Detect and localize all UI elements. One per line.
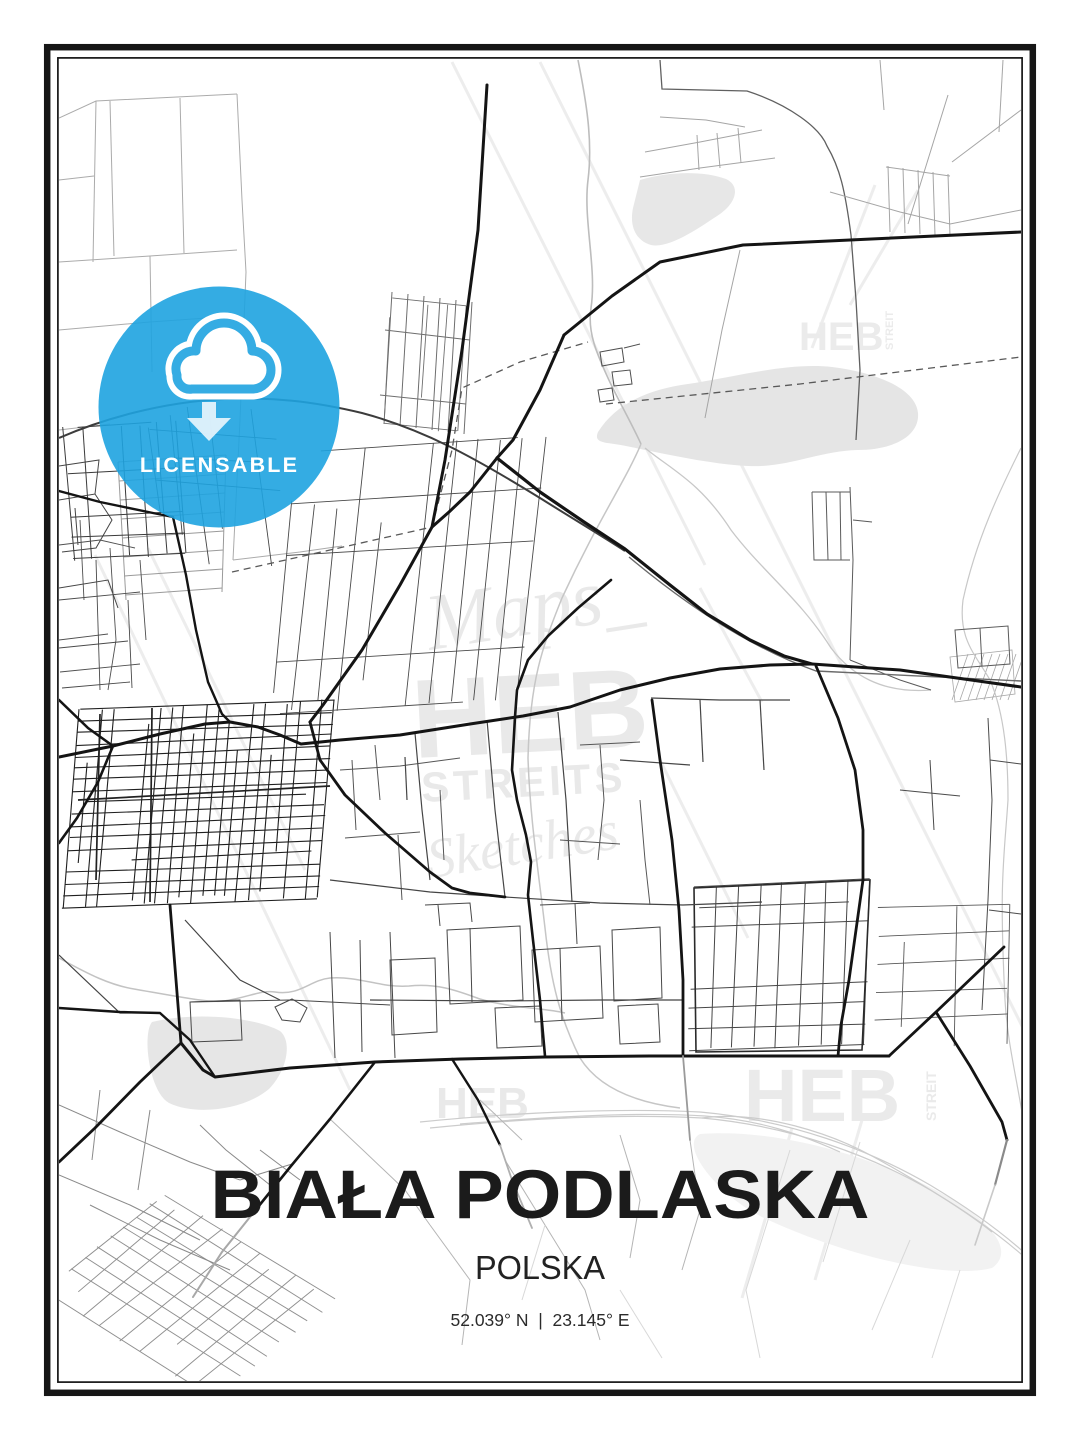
- svg-text:BIAŁA PODLASKA: BIAŁA PODLASKA: [211, 1156, 870, 1233]
- svg-text:STREIT: STREIT: [884, 311, 896, 350]
- svg-text:Sketches: Sketches: [422, 799, 622, 890]
- svg-text:52.039° N | 23.145° E: 52.039° N | 23.145° E: [451, 1310, 630, 1330]
- svg-text:STREIT: STREIT: [923, 1071, 939, 1121]
- svg-text:HEB: HEB: [799, 315, 883, 359]
- svg-text:LICENSABLE: LICENSABLE: [140, 453, 299, 477]
- svg-text:HEB: HEB: [744, 1054, 900, 1137]
- svg-text:POLSKA: POLSKA: [475, 1249, 605, 1286]
